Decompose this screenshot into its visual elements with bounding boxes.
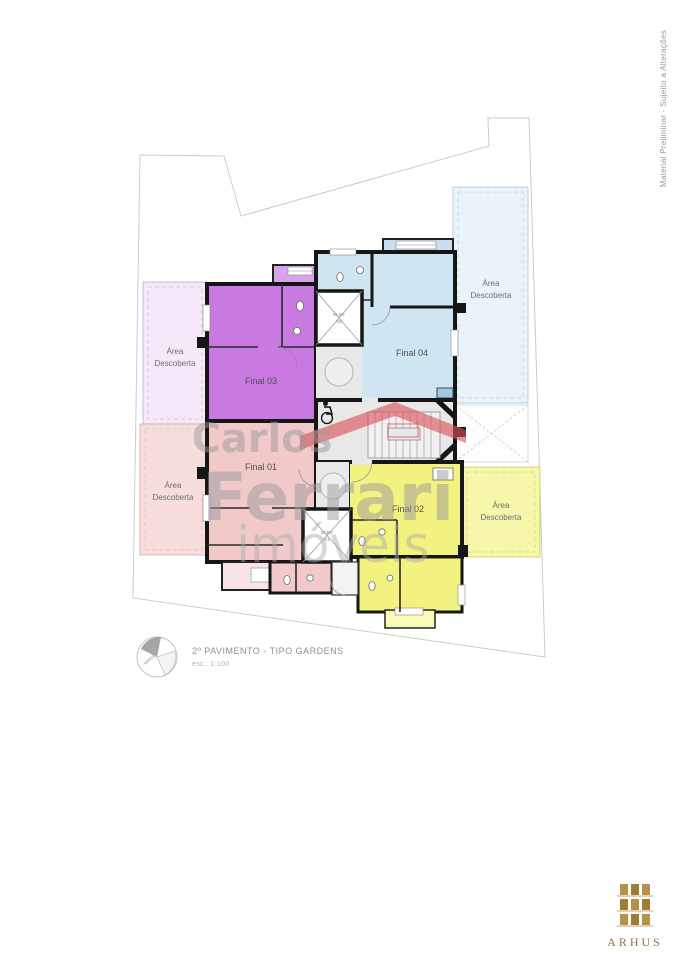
- page-canvas: Área Descoberta Área Descoberta Área Des…: [0, 0, 679, 960]
- arhus-building-icon: [617, 882, 653, 928]
- north-compass-icon: NORTE: [134, 634, 180, 680]
- open-area-final04: Área Descoberta: [453, 187, 528, 462]
- svg-text:Área: Área: [165, 481, 182, 490]
- svg-text:Área: Área: [483, 279, 500, 288]
- brand-name: ARHUS: [603, 935, 667, 950]
- svg-text:Descoberta: Descoberta: [153, 493, 194, 502]
- drawing-title: 2º PAVIMENTO - TIPO GARDENS: [192, 646, 344, 656]
- brand-block: ARHUS: [603, 882, 667, 950]
- side-note: Material Preliminar - Sujeito a Alteraçõ…: [659, 30, 673, 200]
- unit-final-03: Final 03: [207, 265, 316, 421]
- open-area-final02: Área Descoberta: [462, 467, 540, 557]
- floor-plan-drawing: Área Descoberta Área Descoberta Área Des…: [0, 0, 679, 960]
- side-note-text: Material Preliminar - Sujeito a Alteraçõ…: [659, 30, 668, 187]
- svg-text:Descoberta: Descoberta: [155, 359, 196, 368]
- unit-final-04-label: Final 04: [396, 348, 428, 358]
- watermark-line1: Carlos: [191, 416, 332, 462]
- title-block: NORTE 2º PAVIMENTO - TIPO GARDENS esc.: …: [134, 634, 344, 680]
- core-hall-upper: ELEV 03: [316, 291, 362, 400]
- fixture-counter: [437, 388, 453, 398]
- open-area-final03: Área Descoberta: [143, 282, 207, 424]
- svg-text:Área: Área: [493, 501, 510, 510]
- unit-final-03-label: Final 03: [245, 376, 277, 386]
- drawing-scale: esc.: 1:100: [192, 661, 344, 668]
- svg-text:Descoberta: Descoberta: [481, 513, 522, 522]
- open-area-label: Área: [167, 347, 184, 356]
- watermark-line3: imóveis: [236, 516, 429, 574]
- svg-text:Descoberta: Descoberta: [471, 291, 512, 300]
- elevator-03-label: ELEV: [333, 312, 345, 317]
- svg-text:03: 03: [336, 319, 342, 324]
